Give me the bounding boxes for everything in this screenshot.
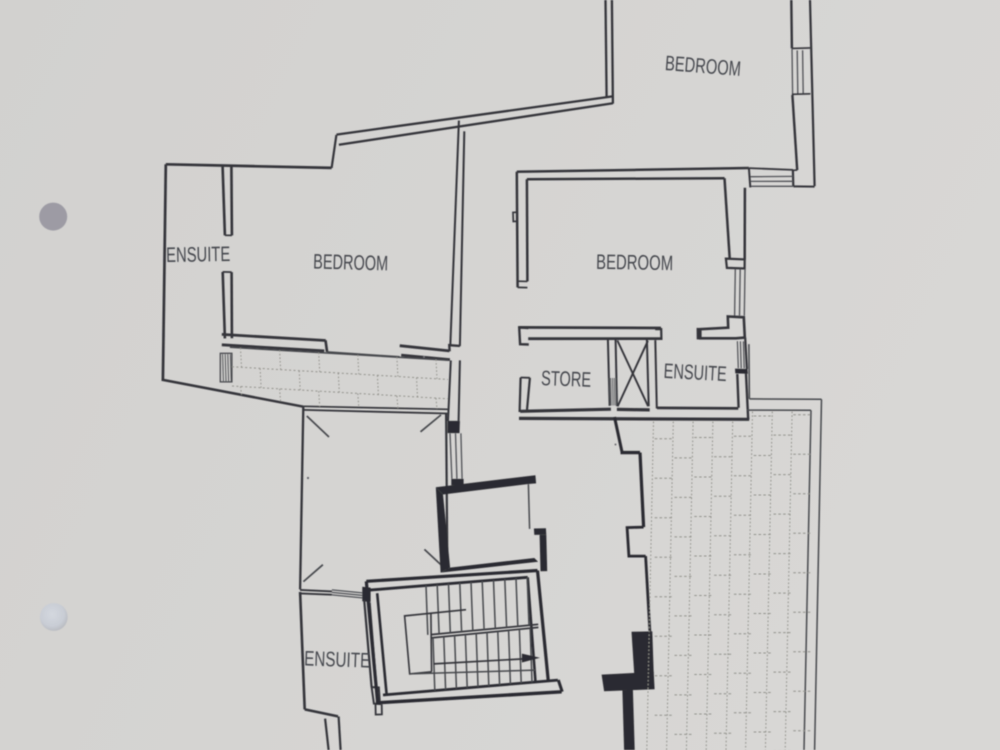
svg-text:BEDROOM: BEDROOM <box>596 251 673 275</box>
svg-text:STORE: STORE <box>541 367 592 392</box>
svg-text:ENSUITE: ENSUITE <box>304 647 371 672</box>
svg-text:ENSUITE: ENSUITE <box>166 243 230 267</box>
svg-text:ENSUITE: ENSUITE <box>663 360 727 386</box>
svg-text:BEDROOM: BEDROOM <box>313 251 389 276</box>
